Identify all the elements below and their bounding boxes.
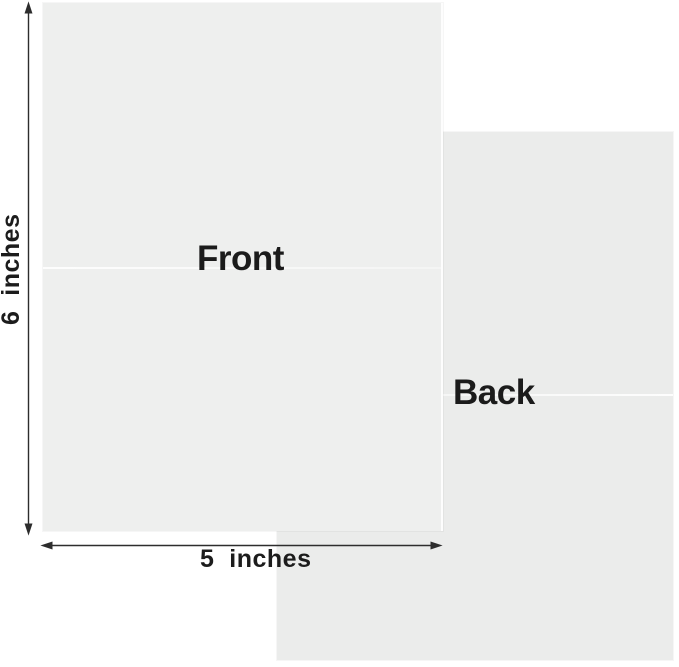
front-card-label: Front	[197, 241, 284, 276]
height-dimension-label: 6 inches	[0, 223, 24, 325]
back-card-label: Back	[453, 375, 535, 410]
arrowhead-left-icon	[42, 542, 52, 549]
product-dimension-diagram: Back Front 6 inches 5 inches	[0, 0, 679, 667]
height-dimension-arrow	[25, 3, 32, 534]
width-dimension-label: 5 inches	[200, 546, 312, 572]
arrowhead-down-icon	[25, 524, 32, 534]
arrowhead-up-icon	[25, 3, 32, 13]
front-card: Front	[43, 3, 443, 531]
